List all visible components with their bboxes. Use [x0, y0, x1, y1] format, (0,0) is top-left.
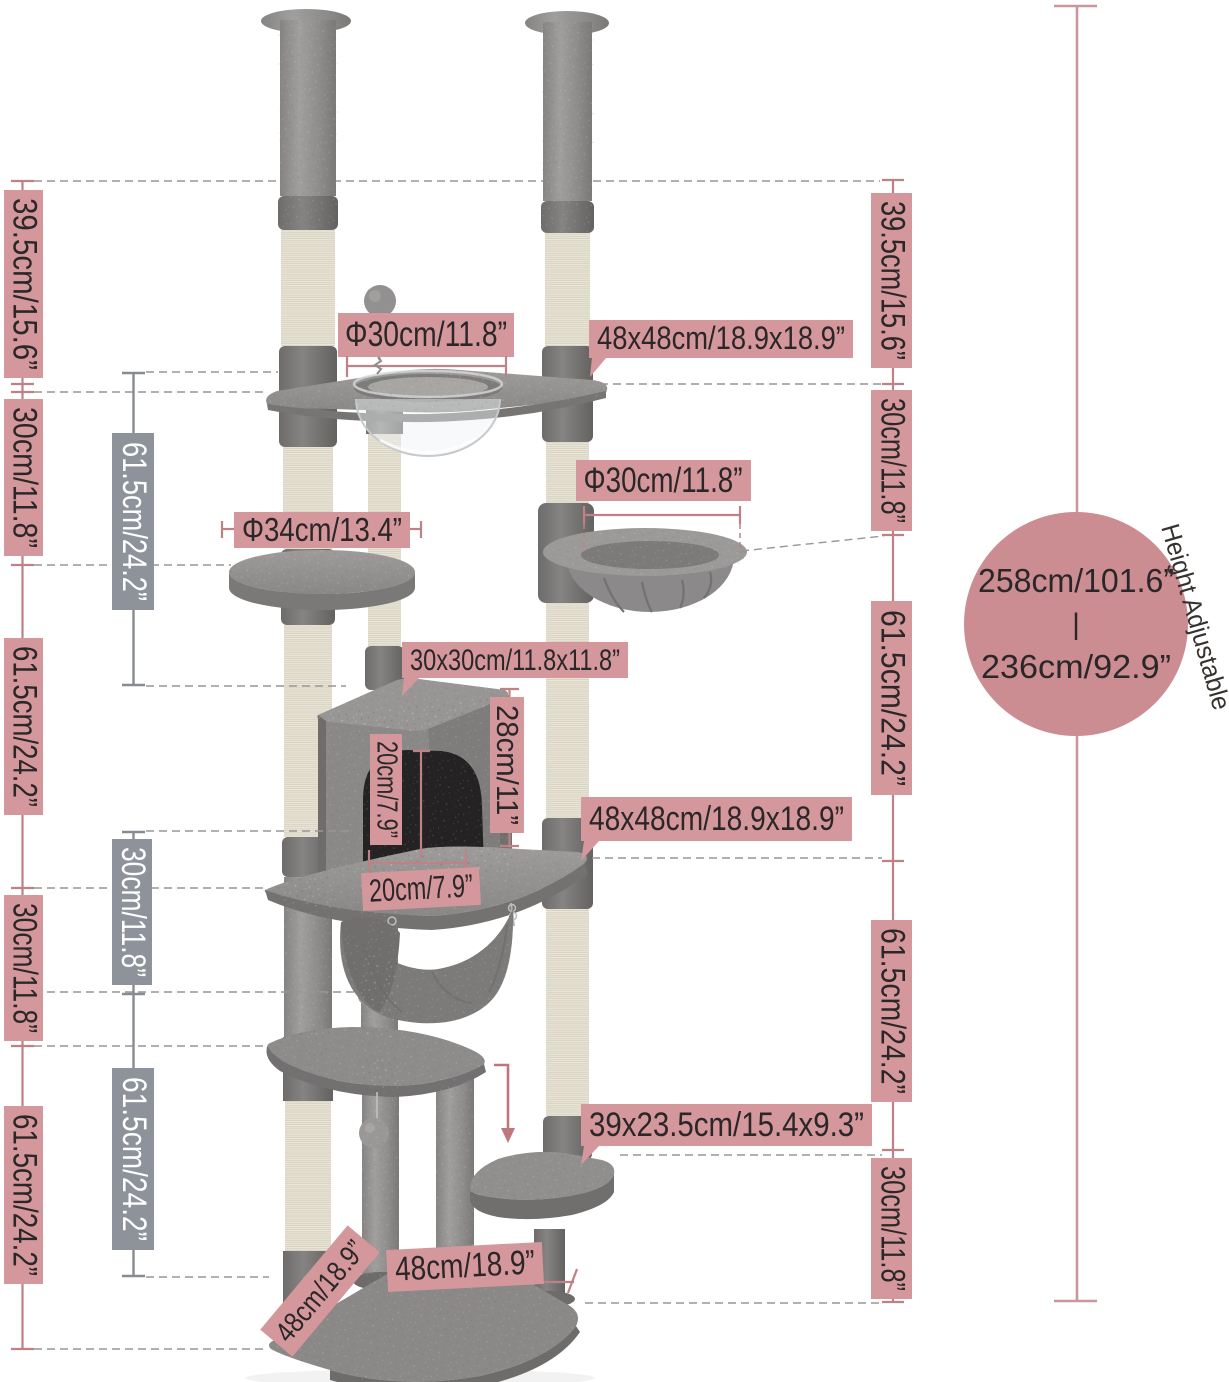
svg-text:61.5cm/24.2”: 61.5cm/24.2”: [874, 610, 912, 786]
svg-text:236cm/92.9”: 236cm/92.9”: [981, 648, 1171, 685]
svg-text:61.5cm/24.2”: 61.5cm/24.2”: [115, 1077, 153, 1241]
svg-text:|: |: [1072, 608, 1080, 641]
svg-text:39x23.5cm/15.4x9.3”: 39x23.5cm/15.4x9.3”: [589, 1106, 864, 1144]
svg-text:30cm/11.8”: 30cm/11.8”: [6, 407, 44, 548]
svg-text:30cm/11.8”: 30cm/11.8”: [114, 847, 152, 977]
svg-text:30x30cm/11.8x11.8”: 30x30cm/11.8x11.8”: [410, 644, 620, 677]
svg-text:28cm/11”: 28cm/11”: [490, 705, 525, 825]
svg-text:30cm/11.8”: 30cm/11.8”: [874, 1166, 912, 1291]
svg-text:30cm/11.8”: 30cm/11.8”: [874, 398, 912, 523]
svg-text:30cm/11.8”: 30cm/11.8”: [6, 903, 44, 1033]
svg-text:39.5cm/15.6”: 39.5cm/15.6”: [6, 198, 44, 370]
svg-text:20cm/7.9”: 20cm/7.9”: [371, 741, 403, 838]
svg-text:61.5cm/24.2”: 61.5cm/24.2”: [115, 442, 153, 601]
svg-text:258cm/101.6”: 258cm/101.6”: [978, 562, 1174, 599]
svg-text:Φ30cm/11.8”: Φ30cm/11.8”: [584, 461, 743, 500]
svg-text:Φ34cm/13.4”: Φ34cm/13.4”: [242, 511, 402, 548]
svg-text:48x48cm/18.9x18.9”: 48x48cm/18.9x18.9”: [589, 800, 844, 838]
svg-text:61.5cm/24.2”: 61.5cm/24.2”: [6, 1114, 44, 1276]
svg-text:20cm/7.9”: 20cm/7.9”: [368, 867, 474, 908]
svg-text:48x48cm/18.9x18.9”: 48x48cm/18.9x18.9”: [597, 320, 845, 356]
svg-text:61.5cm/24.2”: 61.5cm/24.2”: [874, 928, 912, 1094]
svg-text:61.5cm/24.2”: 61.5cm/24.2”: [6, 646, 44, 807]
svg-text:39.5cm/15.6”: 39.5cm/15.6”: [874, 201, 912, 360]
svg-text:Φ30cm/11.8”: Φ30cm/11.8”: [345, 315, 507, 354]
svg-text:48cm/18.9”: 48cm/18.9”: [394, 1243, 536, 1288]
